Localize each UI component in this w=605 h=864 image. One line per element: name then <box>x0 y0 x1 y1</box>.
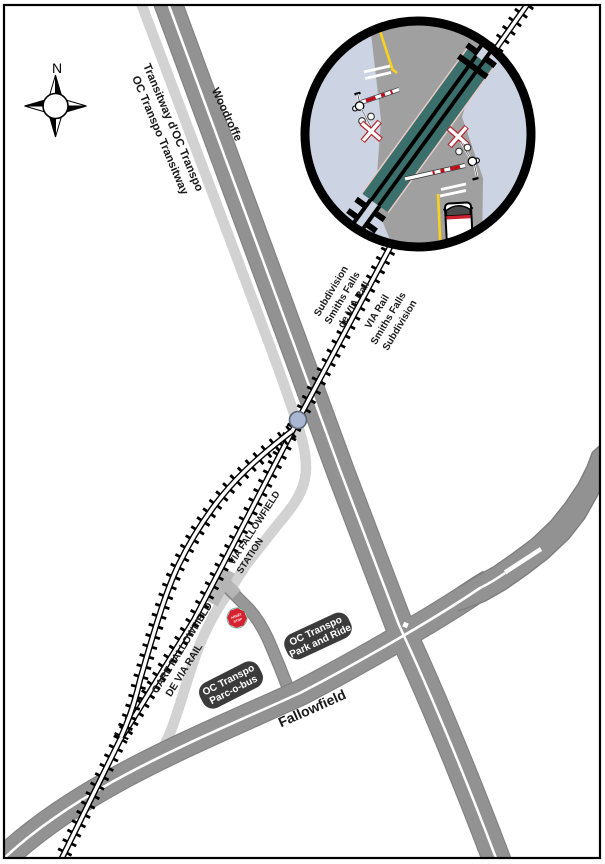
svg-text:N: N <box>52 60 62 76</box>
